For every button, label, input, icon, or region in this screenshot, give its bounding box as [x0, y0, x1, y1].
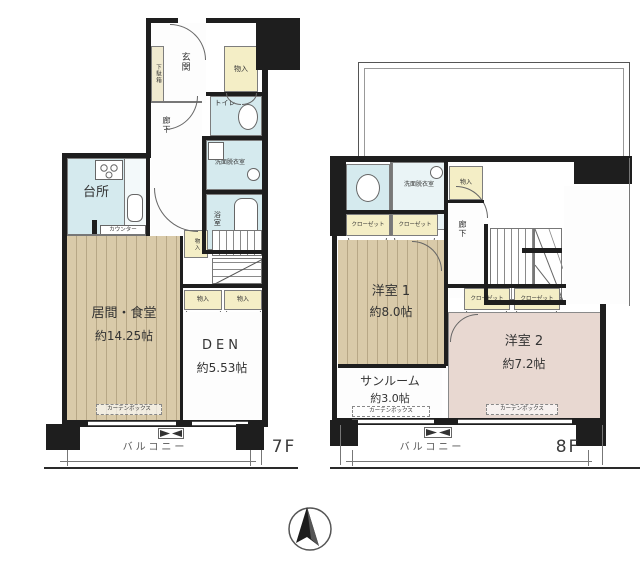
wall	[202, 250, 266, 254]
wall	[146, 18, 151, 158]
wall	[202, 136, 266, 140]
living-den-divider	[180, 236, 183, 420]
wall	[484, 300, 566, 305]
kitchen-sink-icon	[127, 194, 143, 222]
compass-svg	[278, 498, 342, 562]
kitchen-label: 台所	[74, 185, 118, 201]
hallway-label-8f: 廊下	[456, 214, 468, 244]
vent-cap-icon-8f	[424, 427, 452, 438]
wall	[332, 156, 337, 426]
roof-terrace-inner-line	[364, 68, 624, 158]
measure-line	[352, 450, 353, 466]
stove-burners	[96, 161, 124, 181]
balcony-side-line	[340, 425, 341, 465]
room2-size-label: 約7.2帖	[484, 356, 564, 372]
wall	[444, 160, 448, 366]
shoe-cabinet: 下駄箱	[151, 46, 164, 102]
stair-rail-8f	[522, 248, 562, 253]
measure-line	[67, 450, 68, 466]
shaft-block-7f	[256, 18, 300, 70]
room2-name-label: 洋室 2	[484, 334, 564, 350]
landing-8f	[564, 186, 628, 304]
vent-cap-icon	[158, 428, 184, 439]
den-name-label: DEN	[190, 338, 254, 354]
room1-name-label: 洋室 1	[351, 284, 431, 300]
pillar	[46, 424, 80, 450]
living-size-label: 約14.25帖	[77, 328, 171, 344]
terrace-side-line	[629, 158, 630, 306]
balcony-label-8f: バルコニー	[372, 442, 492, 455]
toilet-icon	[238, 104, 258, 130]
wall	[202, 136, 206, 254]
curtain-box-8f-b: カーテンボックス	[486, 404, 558, 415]
curtain-box-7f: カーテンボックス	[96, 404, 162, 415]
measure-line	[588, 450, 589, 466]
closet-8f-d: クローゼット	[514, 288, 560, 310]
measure-line	[250, 450, 251, 466]
window-living-7f	[88, 421, 176, 426]
pillar	[236, 424, 264, 450]
wall-thin	[390, 162, 392, 236]
window-room2-8f	[458, 419, 572, 424]
bath-label-7f: 浴室	[212, 206, 222, 232]
balcony-side-line	[602, 425, 603, 465]
wall	[146, 153, 150, 236]
wall	[202, 190, 266, 194]
ground-line	[346, 461, 592, 462]
floor-label-7f: 7F	[266, 438, 302, 458]
ground-line	[44, 467, 298, 469]
vent-bowtie	[159, 429, 183, 438]
stairs-diagonal-7f	[213, 259, 263, 285]
wall	[446, 200, 484, 203]
window-sunroom-8f	[352, 419, 434, 424]
north-compass-icon	[278, 498, 342, 562]
washroom-label-8f: 洗面脱衣室	[396, 180, 442, 190]
room1-size-label: 約8.0帖	[351, 304, 431, 320]
stove-icon	[95, 160, 123, 180]
wall	[484, 224, 488, 304]
sink-icon-8f	[430, 166, 443, 179]
den-closet-a: 物入	[184, 290, 222, 310]
ground-line	[60, 461, 256, 462]
wall	[446, 284, 566, 288]
vent-bowtie-8f	[425, 428, 451, 437]
ground-line	[330, 467, 640, 469]
den-closet-b: 物入	[224, 290, 262, 310]
pillar	[330, 420, 358, 446]
wall	[62, 153, 151, 158]
toilet-icon-8f	[356, 174, 380, 202]
stairs-lower-7f	[212, 258, 262, 284]
wall	[338, 364, 446, 368]
closet-8f-a: クローゼット	[346, 214, 390, 236]
living-name-label: 居間・食堂	[77, 306, 171, 322]
washer-icon	[208, 142, 224, 160]
floor-plan-canvas: 玄関 下駄箱 物入 トイレ 廊下 洗面脱衣室 浴室 台所 カウンター 居間・食堂…	[0, 0, 640, 569]
wall	[182, 284, 264, 288]
den-size-label: 約5.53帖	[190, 360, 254, 376]
wall	[344, 210, 446, 214]
wall	[262, 70, 268, 426]
balcony-label-7f: バルコニー	[95, 442, 215, 455]
wall	[206, 18, 262, 23]
sunroom-name-label: サンルーム	[346, 374, 434, 388]
wall	[600, 304, 606, 424]
curtain-box-8f-a: カーテンボックス	[352, 406, 430, 417]
entry-closet: 物入	[224, 46, 258, 92]
closet-8f-b: クローゼット	[392, 214, 438, 236]
sunroom-size-label: 約3.0帖	[346, 392, 434, 406]
sink-icon	[247, 168, 260, 181]
kitchen-bottom-line	[67, 234, 146, 236]
block-top-right-8f	[574, 156, 632, 184]
floor-label-8f: 8F	[550, 438, 586, 458]
wall	[62, 153, 67, 428]
